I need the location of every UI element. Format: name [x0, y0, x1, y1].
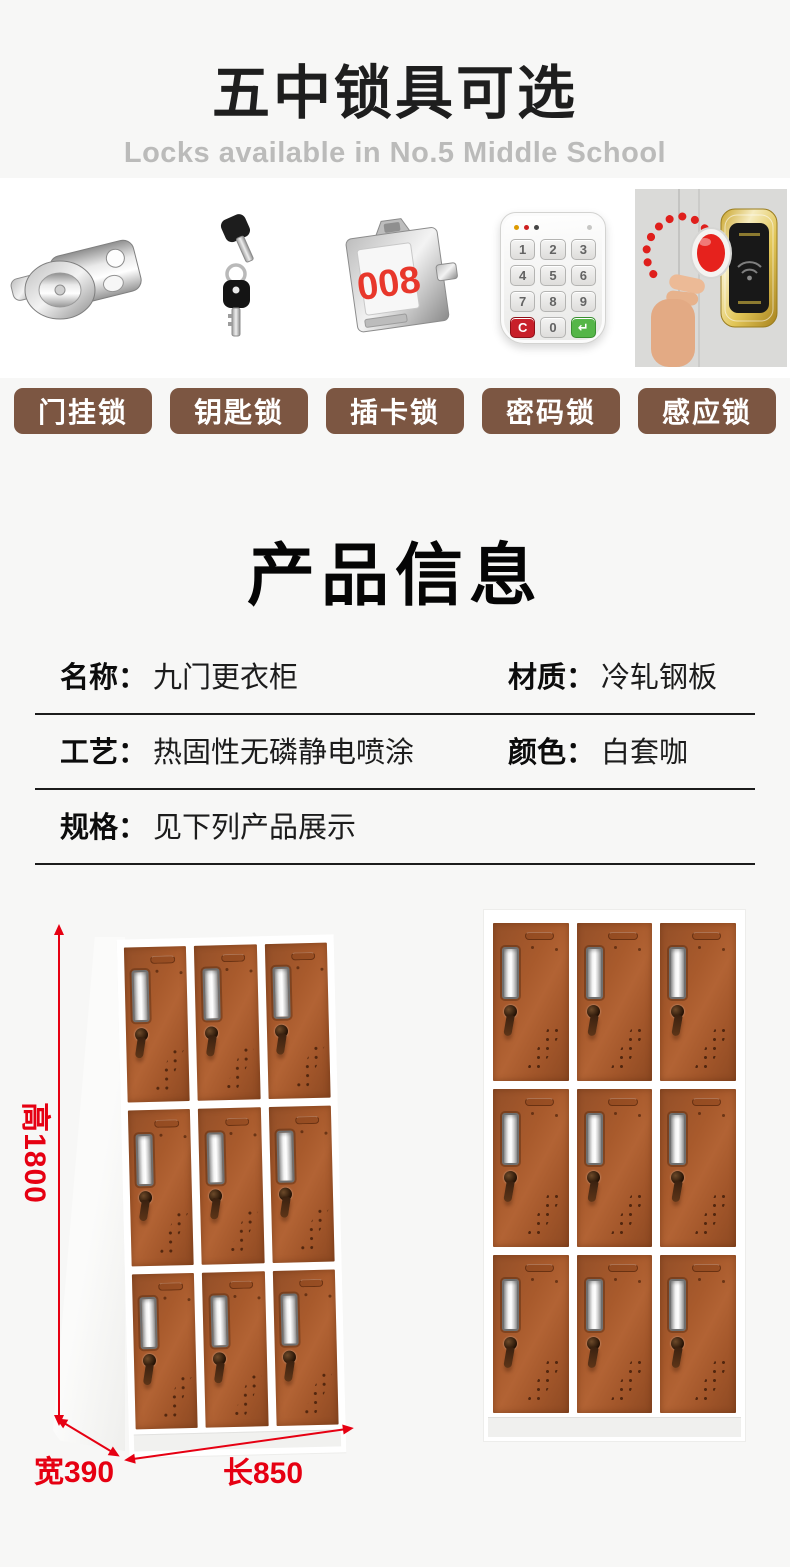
locker-door — [202, 1271, 268, 1428]
door-handle-icon — [281, 1293, 299, 1345]
door-key-icon — [143, 1363, 154, 1385]
door-vent-pins — [300, 1130, 303, 1133]
door-vent-slot — [608, 1098, 637, 1106]
door-vent-slot — [608, 932, 637, 940]
door-vent-holes — [525, 1026, 564, 1073]
door-key-icon — [284, 1360, 295, 1382]
door-vent-slot — [525, 932, 554, 940]
door-vent-slot — [291, 952, 316, 961]
door-key-icon — [276, 1033, 287, 1055]
door-vent-slot — [221, 954, 246, 963]
locker-door — [124, 946, 190, 1103]
door-vent-slot — [150, 956, 175, 965]
door-handle-icon — [206, 1132, 224, 1184]
door-vent-pins — [156, 970, 159, 973]
door-handle-icon — [502, 1113, 519, 1165]
locker-door — [269, 1106, 335, 1263]
door-key-icon — [139, 1200, 150, 1222]
door-key-icon — [209, 1198, 220, 1220]
door-vent-holes — [301, 1370, 335, 1417]
locker-front-panel — [117, 934, 347, 1457]
door-vent-holes — [161, 1374, 195, 1421]
door-vent-slot — [692, 1098, 721, 1106]
door-vent-slot — [525, 1264, 554, 1272]
door-handle-icon — [202, 969, 220, 1021]
door-handle-icon — [140, 1297, 158, 1349]
door-vent-pins — [160, 1133, 163, 1136]
door-vent-slot — [295, 1115, 320, 1124]
door-vent-pins — [531, 1278, 534, 1281]
door-handle-icon — [669, 1113, 686, 1165]
door-key-icon — [671, 1014, 683, 1036]
door-vent-pins — [531, 946, 534, 949]
door-handle-icon — [669, 1279, 686, 1331]
door-key-icon — [587, 1014, 599, 1036]
door-vent-slot — [229, 1280, 254, 1289]
locker-door — [660, 1089, 736, 1247]
product-showcase: 高1800 宽390 长850 — [0, 0, 790, 1567]
door-key-icon — [213, 1362, 224, 1384]
door-vent-pins — [531, 1112, 534, 1115]
door-vent-pins — [698, 1112, 701, 1115]
door-vent-slot — [158, 1282, 183, 1291]
door-vent-slot — [154, 1119, 179, 1128]
door-vent-pins — [304, 1293, 307, 1296]
door-vent-holes — [227, 1209, 261, 1256]
door-vent-holes — [525, 1192, 564, 1239]
door-handle-icon — [586, 1113, 603, 1165]
locker-door — [194, 944, 260, 1101]
door-handle-icon — [273, 967, 291, 1019]
locker-door-grid-right — [493, 923, 736, 1413]
door-vent-holes — [608, 1358, 647, 1405]
locker-door — [493, 923, 569, 1081]
door-vent-holes — [692, 1026, 731, 1073]
locker-door — [660, 1255, 736, 1413]
door-vent-pins — [164, 1297, 167, 1300]
length-dimension-label: 长850 — [223, 1448, 303, 1492]
height-dimension-label: 高1800 — [16, 1073, 60, 1233]
door-vent-holes — [692, 1192, 731, 1239]
locker-door — [577, 1089, 653, 1247]
door-vent-slot — [225, 1117, 250, 1126]
door-vent-slot — [608, 1264, 637, 1272]
door-vent-holes — [608, 1026, 647, 1073]
door-vent-slot — [525, 1098, 554, 1106]
door-key-icon — [671, 1180, 683, 1202]
door-handle-icon — [586, 1279, 603, 1331]
door-vent-holes — [153, 1047, 187, 1094]
locker-door — [493, 1089, 569, 1247]
locker-cabinet-perspective — [53, 921, 340, 1466]
door-handle-icon — [136, 1134, 154, 1186]
door-handle-icon — [502, 947, 519, 999]
door-vent-pins — [226, 968, 229, 971]
door-vent-pins — [614, 1112, 617, 1115]
door-vent-pins — [698, 1278, 701, 1281]
locker-door — [272, 1269, 338, 1426]
door-vent-holes — [692, 1358, 731, 1405]
door-vent-slot — [299, 1279, 324, 1288]
width-dimension-label: 宽390 — [34, 1447, 114, 1491]
product-detail-page: 五中锁具可选 Locks available in No.5 Middle Sc… — [0, 0, 790, 1567]
locker-side-panel — [53, 937, 125, 1451]
door-vent-pins — [698, 946, 701, 949]
door-key-icon — [280, 1197, 291, 1219]
locker-door — [577, 923, 653, 1081]
locker-door-grid-left — [124, 943, 339, 1430]
locker-cabinet-front — [484, 910, 745, 1441]
locker-door — [577, 1255, 653, 1413]
locker-door — [132, 1273, 198, 1430]
locker-door — [128, 1109, 194, 1266]
door-handle-icon — [277, 1130, 295, 1182]
door-handle-icon — [132, 970, 150, 1022]
locker-door — [660, 923, 736, 1081]
door-key-icon — [587, 1180, 599, 1202]
locker-door — [493, 1255, 569, 1413]
door-key-icon — [504, 1180, 516, 1202]
door-vent-holes — [293, 1044, 327, 1091]
door-vent-holes — [223, 1045, 257, 1092]
door-key-icon — [135, 1037, 146, 1059]
door-key-icon — [504, 1014, 516, 1036]
door-vent-pins — [614, 1278, 617, 1281]
locker-door — [265, 943, 331, 1100]
door-handle-icon — [586, 947, 603, 999]
locker-door — [198, 1108, 264, 1265]
door-key-icon — [671, 1346, 683, 1368]
door-vent-pins — [614, 946, 617, 949]
door-vent-holes — [297, 1207, 331, 1254]
door-vent-holes — [525, 1358, 564, 1405]
door-vent-pins — [234, 1295, 237, 1298]
door-vent-pins — [230, 1132, 233, 1135]
door-key-icon — [587, 1346, 599, 1368]
door-vent-holes — [157, 1210, 191, 1257]
door-handle-icon — [502, 1279, 519, 1331]
door-vent-pins — [296, 967, 299, 970]
door-vent-holes — [231, 1372, 265, 1419]
door-vent-slot — [692, 1264, 721, 1272]
door-handle-icon — [669, 947, 686, 999]
door-handle-icon — [210, 1295, 228, 1347]
door-vent-slot — [692, 932, 721, 940]
door-key-icon — [504, 1346, 516, 1368]
door-vent-holes — [608, 1192, 647, 1239]
